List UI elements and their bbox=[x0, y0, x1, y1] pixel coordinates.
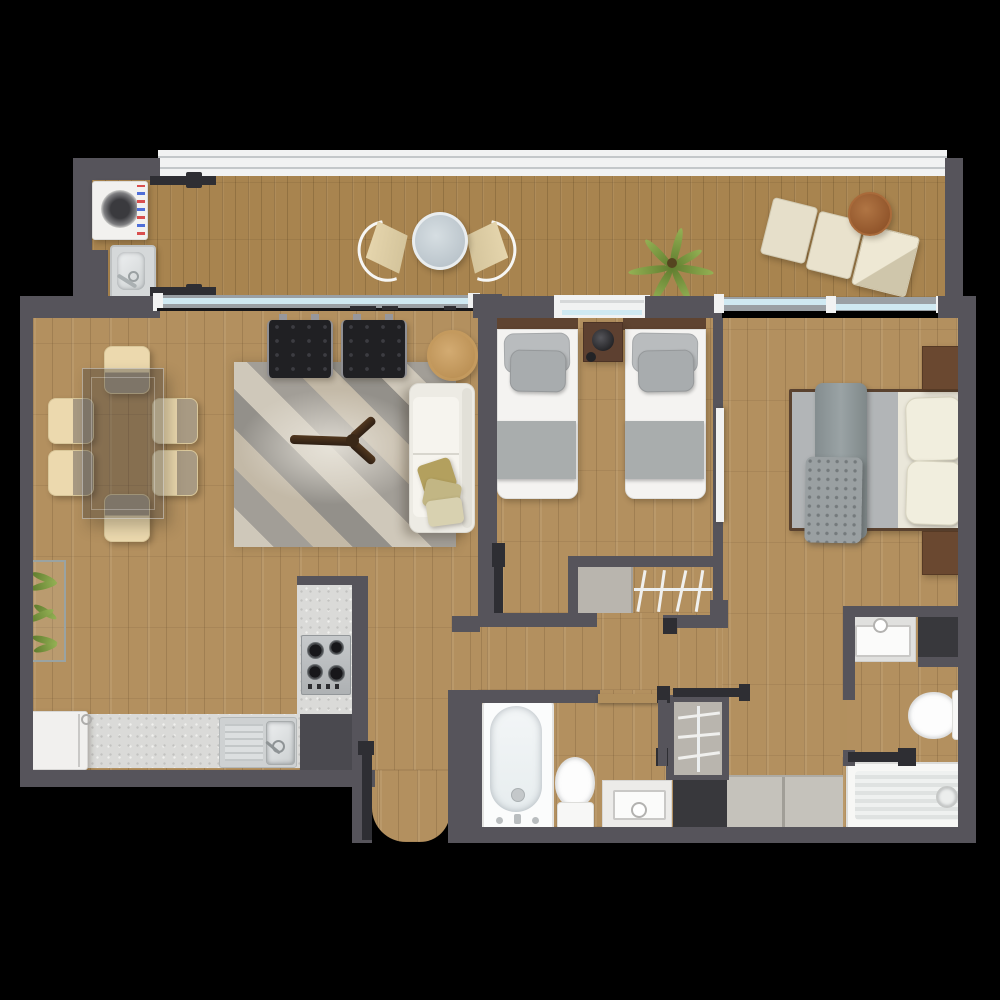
sliding-glass-door bbox=[722, 299, 828, 305]
wall-segment bbox=[645, 296, 722, 318]
table-hub bbox=[346, 434, 359, 447]
door-jamb bbox=[739, 684, 750, 701]
cooktop-knobs bbox=[308, 684, 344, 689]
wall-segment bbox=[843, 606, 976, 617]
bed-blanket bbox=[625, 421, 704, 479]
threshold-mark bbox=[444, 306, 456, 310]
wardrobe-tiles bbox=[724, 775, 843, 829]
wall-segment bbox=[570, 556, 722, 567]
threshold-mark bbox=[382, 306, 398, 310]
entry-door-leaf bbox=[362, 745, 372, 840]
fridge-door-line bbox=[78, 714, 80, 767]
wall-segment bbox=[20, 300, 33, 777]
wall-segment bbox=[85, 250, 108, 300]
bistro-table bbox=[412, 212, 468, 270]
balcony-railing-line bbox=[158, 167, 947, 169]
bed-pillow bbox=[905, 396, 963, 462]
wall-segment bbox=[455, 690, 600, 703]
sofa-seat-split bbox=[413, 453, 459, 455]
door-jamb bbox=[358, 741, 374, 755]
entry-floor bbox=[372, 770, 450, 842]
door-cap bbox=[714, 294, 724, 313]
chair-leg bbox=[353, 314, 361, 320]
threshold-mark bbox=[350, 306, 376, 310]
chair-leg bbox=[385, 314, 393, 320]
open-door-leaf-tan bbox=[598, 694, 660, 703]
tub-faucet-icon bbox=[496, 817, 503, 824]
vanity-sink bbox=[602, 780, 672, 831]
dark-niche bbox=[673, 780, 727, 827]
round-side-table bbox=[427, 330, 478, 381]
vanity-sink bbox=[846, 616, 916, 662]
wall-segment bbox=[658, 700, 667, 766]
door-track bbox=[150, 176, 216, 185]
burner-icon bbox=[307, 642, 324, 659]
door-cap bbox=[826, 296, 836, 313]
washer-controls bbox=[137, 185, 145, 235]
bed-pillow bbox=[510, 350, 567, 393]
sliding-glass-door bbox=[162, 298, 472, 304]
throw-pillow bbox=[425, 497, 464, 528]
window-inner-line bbox=[560, 300, 644, 303]
chair-leg bbox=[311, 314, 319, 320]
washer-drum-icon bbox=[101, 190, 139, 228]
single-bed bbox=[623, 318, 706, 500]
wall-segment bbox=[478, 613, 597, 627]
door-jamb bbox=[492, 543, 505, 567]
wall-segment bbox=[448, 827, 976, 843]
floor-plan-canvas bbox=[0, 0, 1000, 1000]
threshold-line bbox=[157, 308, 478, 311]
vanity-faucet-icon bbox=[631, 802, 647, 818]
burner-icon bbox=[329, 640, 344, 655]
toilet-bowl bbox=[555, 757, 595, 807]
wall-segment bbox=[497, 296, 560, 318]
shower-tray bbox=[846, 762, 976, 833]
washing-machine bbox=[92, 181, 148, 240]
black-armchair bbox=[341, 320, 407, 378]
tub-drain-icon bbox=[511, 788, 525, 802]
bed-blanket bbox=[497, 421, 576, 479]
wall-segment bbox=[452, 616, 480, 632]
window-glass bbox=[562, 310, 642, 315]
shower-drain-icon bbox=[936, 786, 958, 808]
dining-table bbox=[82, 368, 164, 519]
door-track-hinge bbox=[186, 172, 202, 188]
bathtub bbox=[482, 698, 554, 835]
drainboard bbox=[225, 724, 263, 761]
refrigerator bbox=[24, 711, 88, 770]
wall-segment bbox=[448, 690, 482, 843]
wall-segment bbox=[843, 608, 855, 700]
chair-leg bbox=[279, 314, 287, 320]
vanity-faucet-icon bbox=[873, 618, 888, 633]
burner-icon bbox=[307, 664, 323, 680]
bed-pillow bbox=[638, 350, 695, 393]
open-door-leaf bbox=[673, 688, 748, 697]
toilet-tank bbox=[557, 802, 594, 830]
cooktop bbox=[301, 635, 351, 695]
folded-blanket bbox=[804, 457, 862, 544]
open-door-leaf bbox=[716, 408, 724, 522]
wall-segment bbox=[958, 296, 976, 843]
closet-shelf bbox=[577, 567, 633, 613]
dark-cabinet bbox=[300, 714, 356, 770]
lamp-switch-icon bbox=[586, 352, 596, 362]
table-lamp-icon bbox=[592, 329, 614, 351]
burner-icon bbox=[328, 665, 345, 682]
wall-segment bbox=[20, 770, 375, 787]
round-side-table bbox=[848, 192, 892, 236]
wall-segment bbox=[20, 296, 160, 318]
sliding-glass-door bbox=[834, 304, 938, 310]
toilet-bowl bbox=[908, 692, 958, 739]
sofa-back bbox=[462, 388, 472, 528]
bed-pillow bbox=[905, 460, 963, 526]
fridge-handle-icon bbox=[81, 714, 92, 725]
black-armchair bbox=[267, 320, 333, 378]
open-door-leaf-tan bbox=[840, 700, 847, 757]
tile-divider bbox=[782, 777, 785, 829]
tub-faucet-icon bbox=[532, 817, 539, 824]
single-bed bbox=[495, 318, 578, 500]
door-jamb bbox=[663, 618, 677, 634]
tub-faucet-icon bbox=[514, 814, 521, 824]
kitchen-sink bbox=[219, 717, 297, 768]
door-jamb bbox=[898, 748, 916, 766]
plant-core bbox=[667, 258, 677, 268]
wall-segment bbox=[945, 158, 963, 300]
balcony-railing-line bbox=[158, 156, 947, 158]
wall-segment bbox=[918, 657, 966, 667]
wall-segment bbox=[710, 600, 728, 618]
balcony-railing bbox=[158, 150, 947, 176]
table-inner-line bbox=[91, 377, 155, 510]
